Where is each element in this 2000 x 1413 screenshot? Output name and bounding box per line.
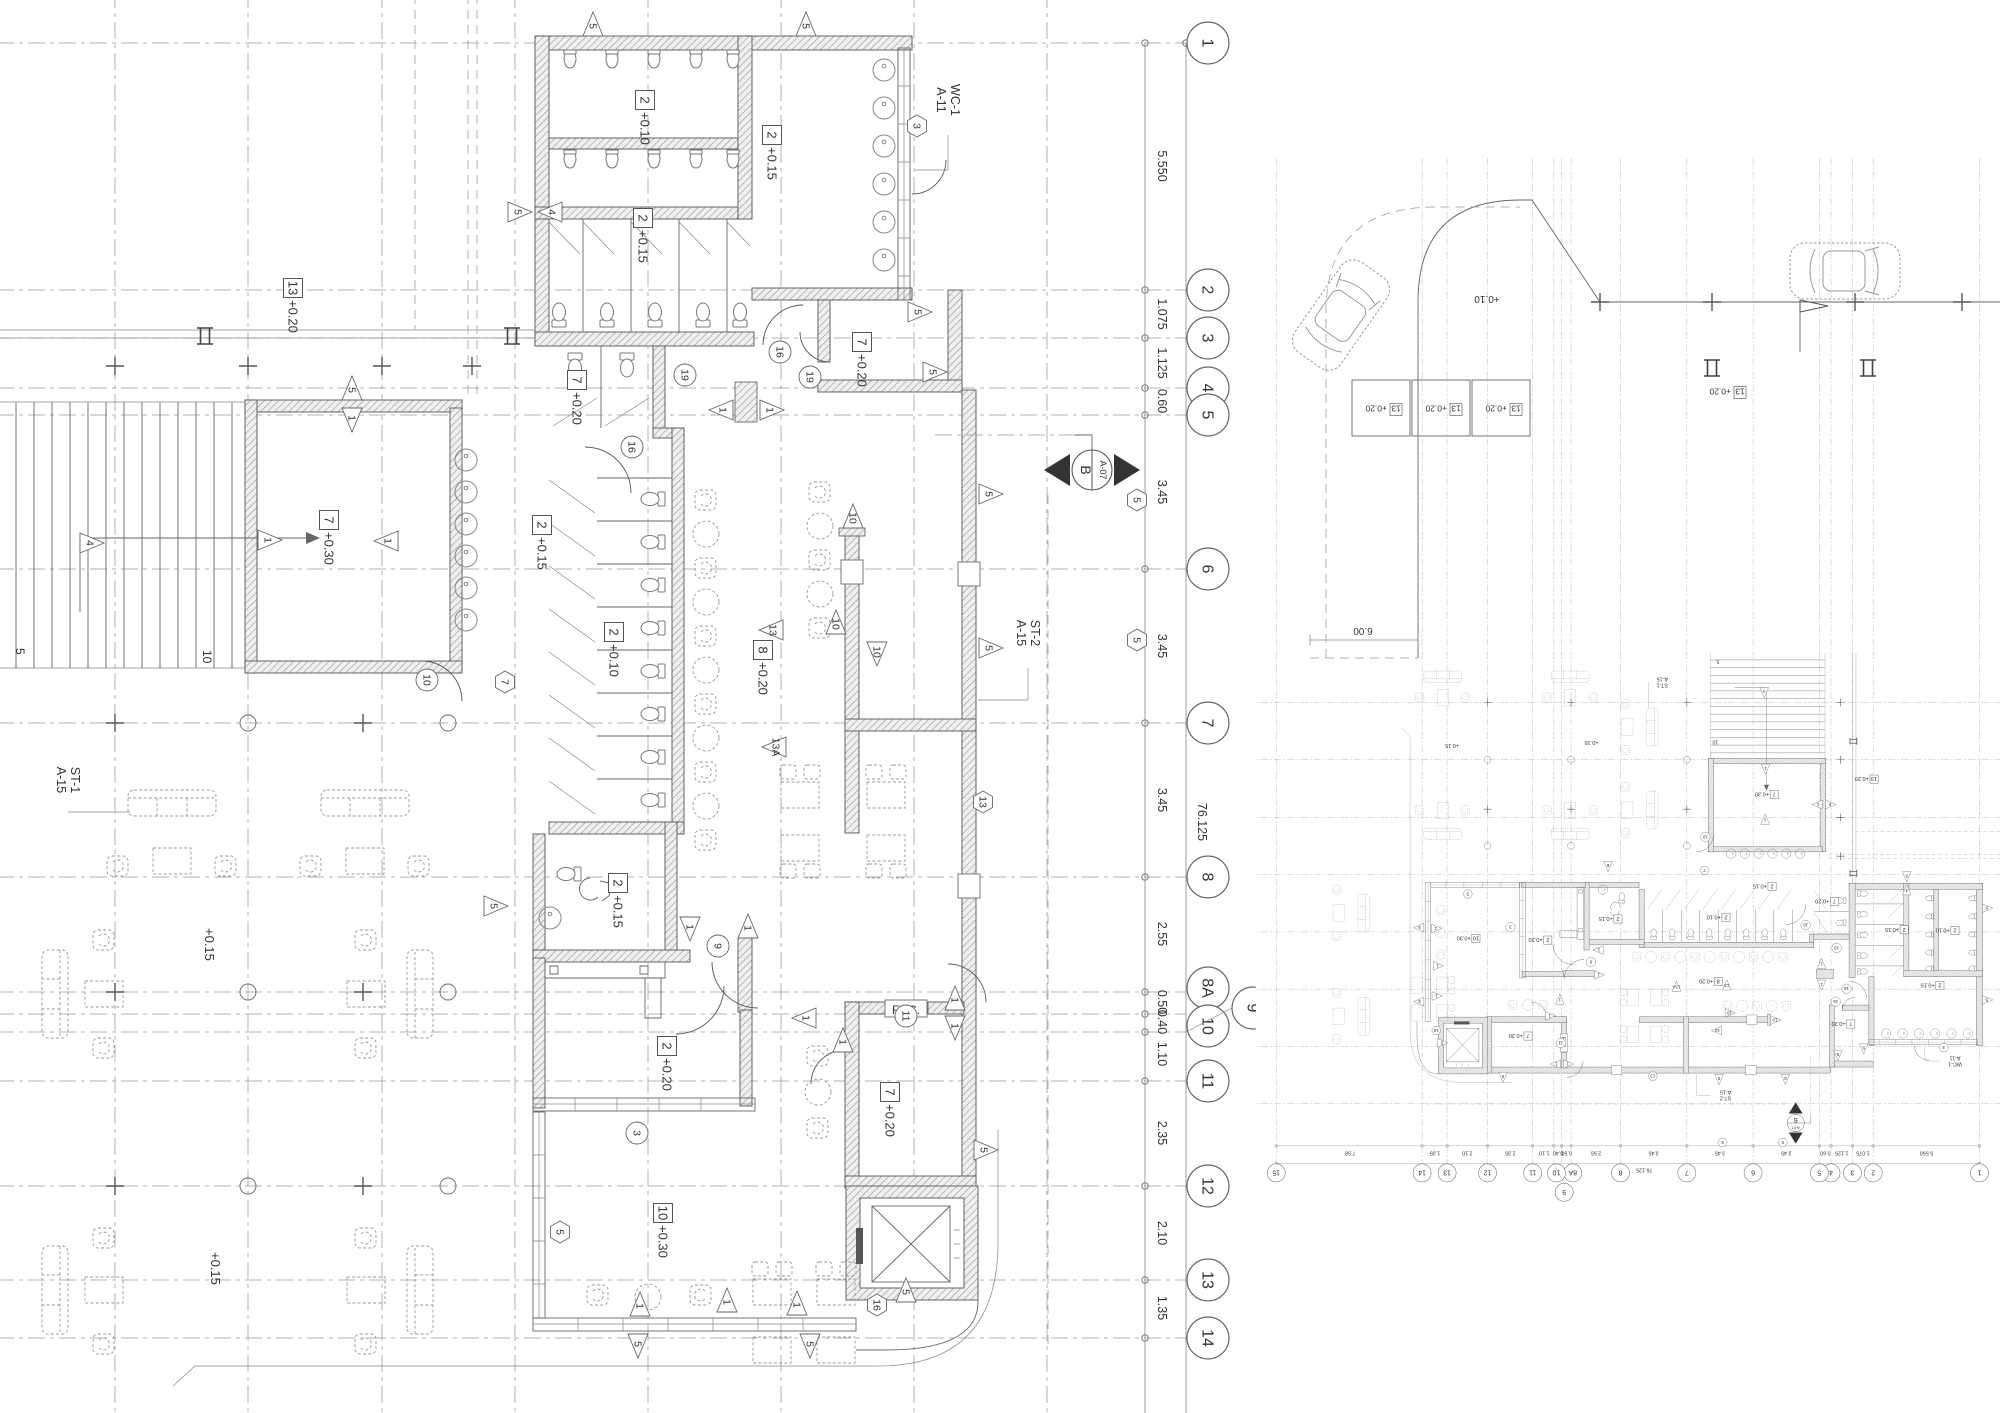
parking-bay-tag: 13+0.20 <box>1709 387 1746 399</box>
site-labels: 13+0.2013+0.2013+0.2013+0.20+0.106.00 <box>1353 293 1746 636</box>
floor-plan-sheet: 5.5501.0751.1250.603.453.453.452.550.500… <box>0 0 2000 1413</box>
svg-text:13: 13 <box>1735 387 1745 397</box>
parking-bay-tag: 13+0.20 <box>1425 404 1462 416</box>
parking-bay-tag: 13+0.20 <box>1485 404 1522 416</box>
svg-text:+0.20: +0.20 <box>1365 404 1387 414</box>
site-dimension: 6.00 <box>1353 625 1373 636</box>
parking-bay-tag: 13+0.20 <box>1365 404 1402 416</box>
svg-text:+0.20: +0.20 <box>1425 404 1447 414</box>
svg-text:+0.20: +0.20 <box>1709 387 1731 397</box>
svg-text:+0.20: +0.20 <box>1485 404 1507 414</box>
svg-text:13: 13 <box>1451 404 1461 414</box>
svg-text:13: 13 <box>1511 404 1521 414</box>
site-plan-context: 13+0.2013+0.2013+0.2013+0.20+0.106.00 <box>1287 200 2000 658</box>
road-level-label: +0.10 <box>1474 293 1500 304</box>
cad-canvas: 5.5501.0751.1250.603.453.453.452.550.500… <box>0 0 2000 1413</box>
left-plan-view <box>0 0 1274 1413</box>
svg-text:13: 13 <box>1391 404 1401 414</box>
